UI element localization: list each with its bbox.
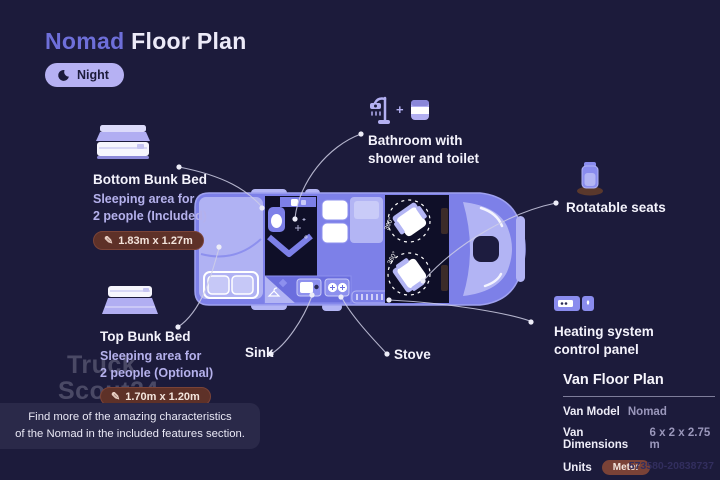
shelf-bottle [301, 200, 306, 205]
bottom-bunk-desc-line1: Sleeping area for [93, 191, 207, 208]
rotatable-seats-label: Rotatable seats [566, 200, 666, 215]
top-bunk-desc-line1: Sleeping area for [100, 348, 213, 365]
toilet-icon [410, 97, 430, 122]
info-panel-title: Van Floor Plan [563, 372, 715, 397]
bathroom-label-line2: shower and toilet [368, 150, 479, 168]
bottom-bunk-title: Bottom Bunk Bed [93, 172, 207, 187]
sink-faucet [314, 285, 318, 289]
hood-vent [473, 236, 499, 262]
bottom-bunk-desc-line2: 2 people (Included) [93, 208, 207, 225]
page-title-model: Nomad [45, 28, 124, 54]
van-floor-plan-illustration: 360° 360° [185, 180, 545, 320]
info-row-dimensions: Van Dimensions 6 x 2 x 2.75 m [563, 427, 715, 451]
front-bumper [516, 216, 525, 282]
wardrobe-shelf [354, 201, 379, 219]
units-label: Units [563, 462, 592, 474]
bathroom-label-line1: Bathroom with [368, 132, 479, 150]
stove-label: Stove [394, 347, 431, 362]
bunk-bed-icon [100, 285, 160, 319]
sink-label: Sink [245, 345, 274, 360]
footer-note-line2: of the Nomad in the included features se… [15, 426, 245, 443]
seat-icon [572, 160, 608, 196]
heating-panel-icon [554, 296, 594, 312]
ruler-icon: ✎ [111, 390, 120, 403]
heating-label-line2: control panel [554, 341, 654, 359]
van-dimensions-label: Van Dimensions [563, 427, 641, 451]
callout-rotatable-seats: Rotatable seats [566, 160, 666, 215]
footer-note: Find more of the amazing characteristics… [0, 403, 260, 449]
shower-icon [368, 93, 390, 125]
top-bunk-dimensions: 1.70m x 1.20m [125, 391, 200, 403]
footer-note-line1: Find more of the amazing characteristics [28, 409, 231, 426]
heating-label-line1: Heating system [554, 323, 654, 341]
callout-heating: Heating system control panel [554, 296, 654, 358]
page-title: Nomad Floor Plan [45, 28, 247, 55]
bunk-bed-icon [93, 124, 153, 162]
cab-pillar [441, 265, 448, 291]
dinette-seat [322, 200, 348, 220]
night-mode-label: Night [77, 68, 109, 82]
van-model-label: Van Model [563, 406, 620, 418]
floor-plan-page: Truck Scout24 Nomad Floor Plan Night [0, 0, 720, 480]
info-row-model: Van Model Nomad [563, 406, 715, 418]
moon-icon [57, 69, 70, 82]
top-bunk-desc-line2: 2 people (Optional) [100, 365, 213, 382]
van-model-value: Nomad [628, 406, 667, 418]
cab-pillar [441, 208, 448, 234]
callout-bathroom: + Bathroom with shower and toilet [368, 93, 479, 167]
callout-top-bunk: Top Bunk Bed Sleeping area for 2 people … [100, 285, 213, 406]
shelf-bottle [291, 199, 298, 206]
plus-icon: + [396, 102, 404, 117]
night-mode-toggle[interactable]: Night [45, 63, 124, 87]
bottom-bunk-dimensions-badge: ✎ 1.83m x 1.27m [93, 231, 204, 250]
page-title-rest: Floor Plan [131, 28, 246, 54]
bottom-bunk-dimensions: 1.83m x 1.27m [118, 235, 193, 247]
van-dimensions-value: 6 x 2 x 2.75 m [649, 427, 715, 451]
photo-id: 573580-20838737 [629, 460, 714, 472]
sink-basin [300, 282, 313, 293]
toilet-bowl [271, 214, 282, 228]
dinette-seat [322, 223, 348, 243]
ruler-icon: ✎ [104, 234, 113, 247]
top-bunk-title: Top Bunk Bed [100, 329, 213, 344]
callout-bottom-bunk: Bottom Bunk Bed Sleeping area for 2 peop… [93, 124, 207, 250]
bed-cushion [232, 276, 253, 294]
